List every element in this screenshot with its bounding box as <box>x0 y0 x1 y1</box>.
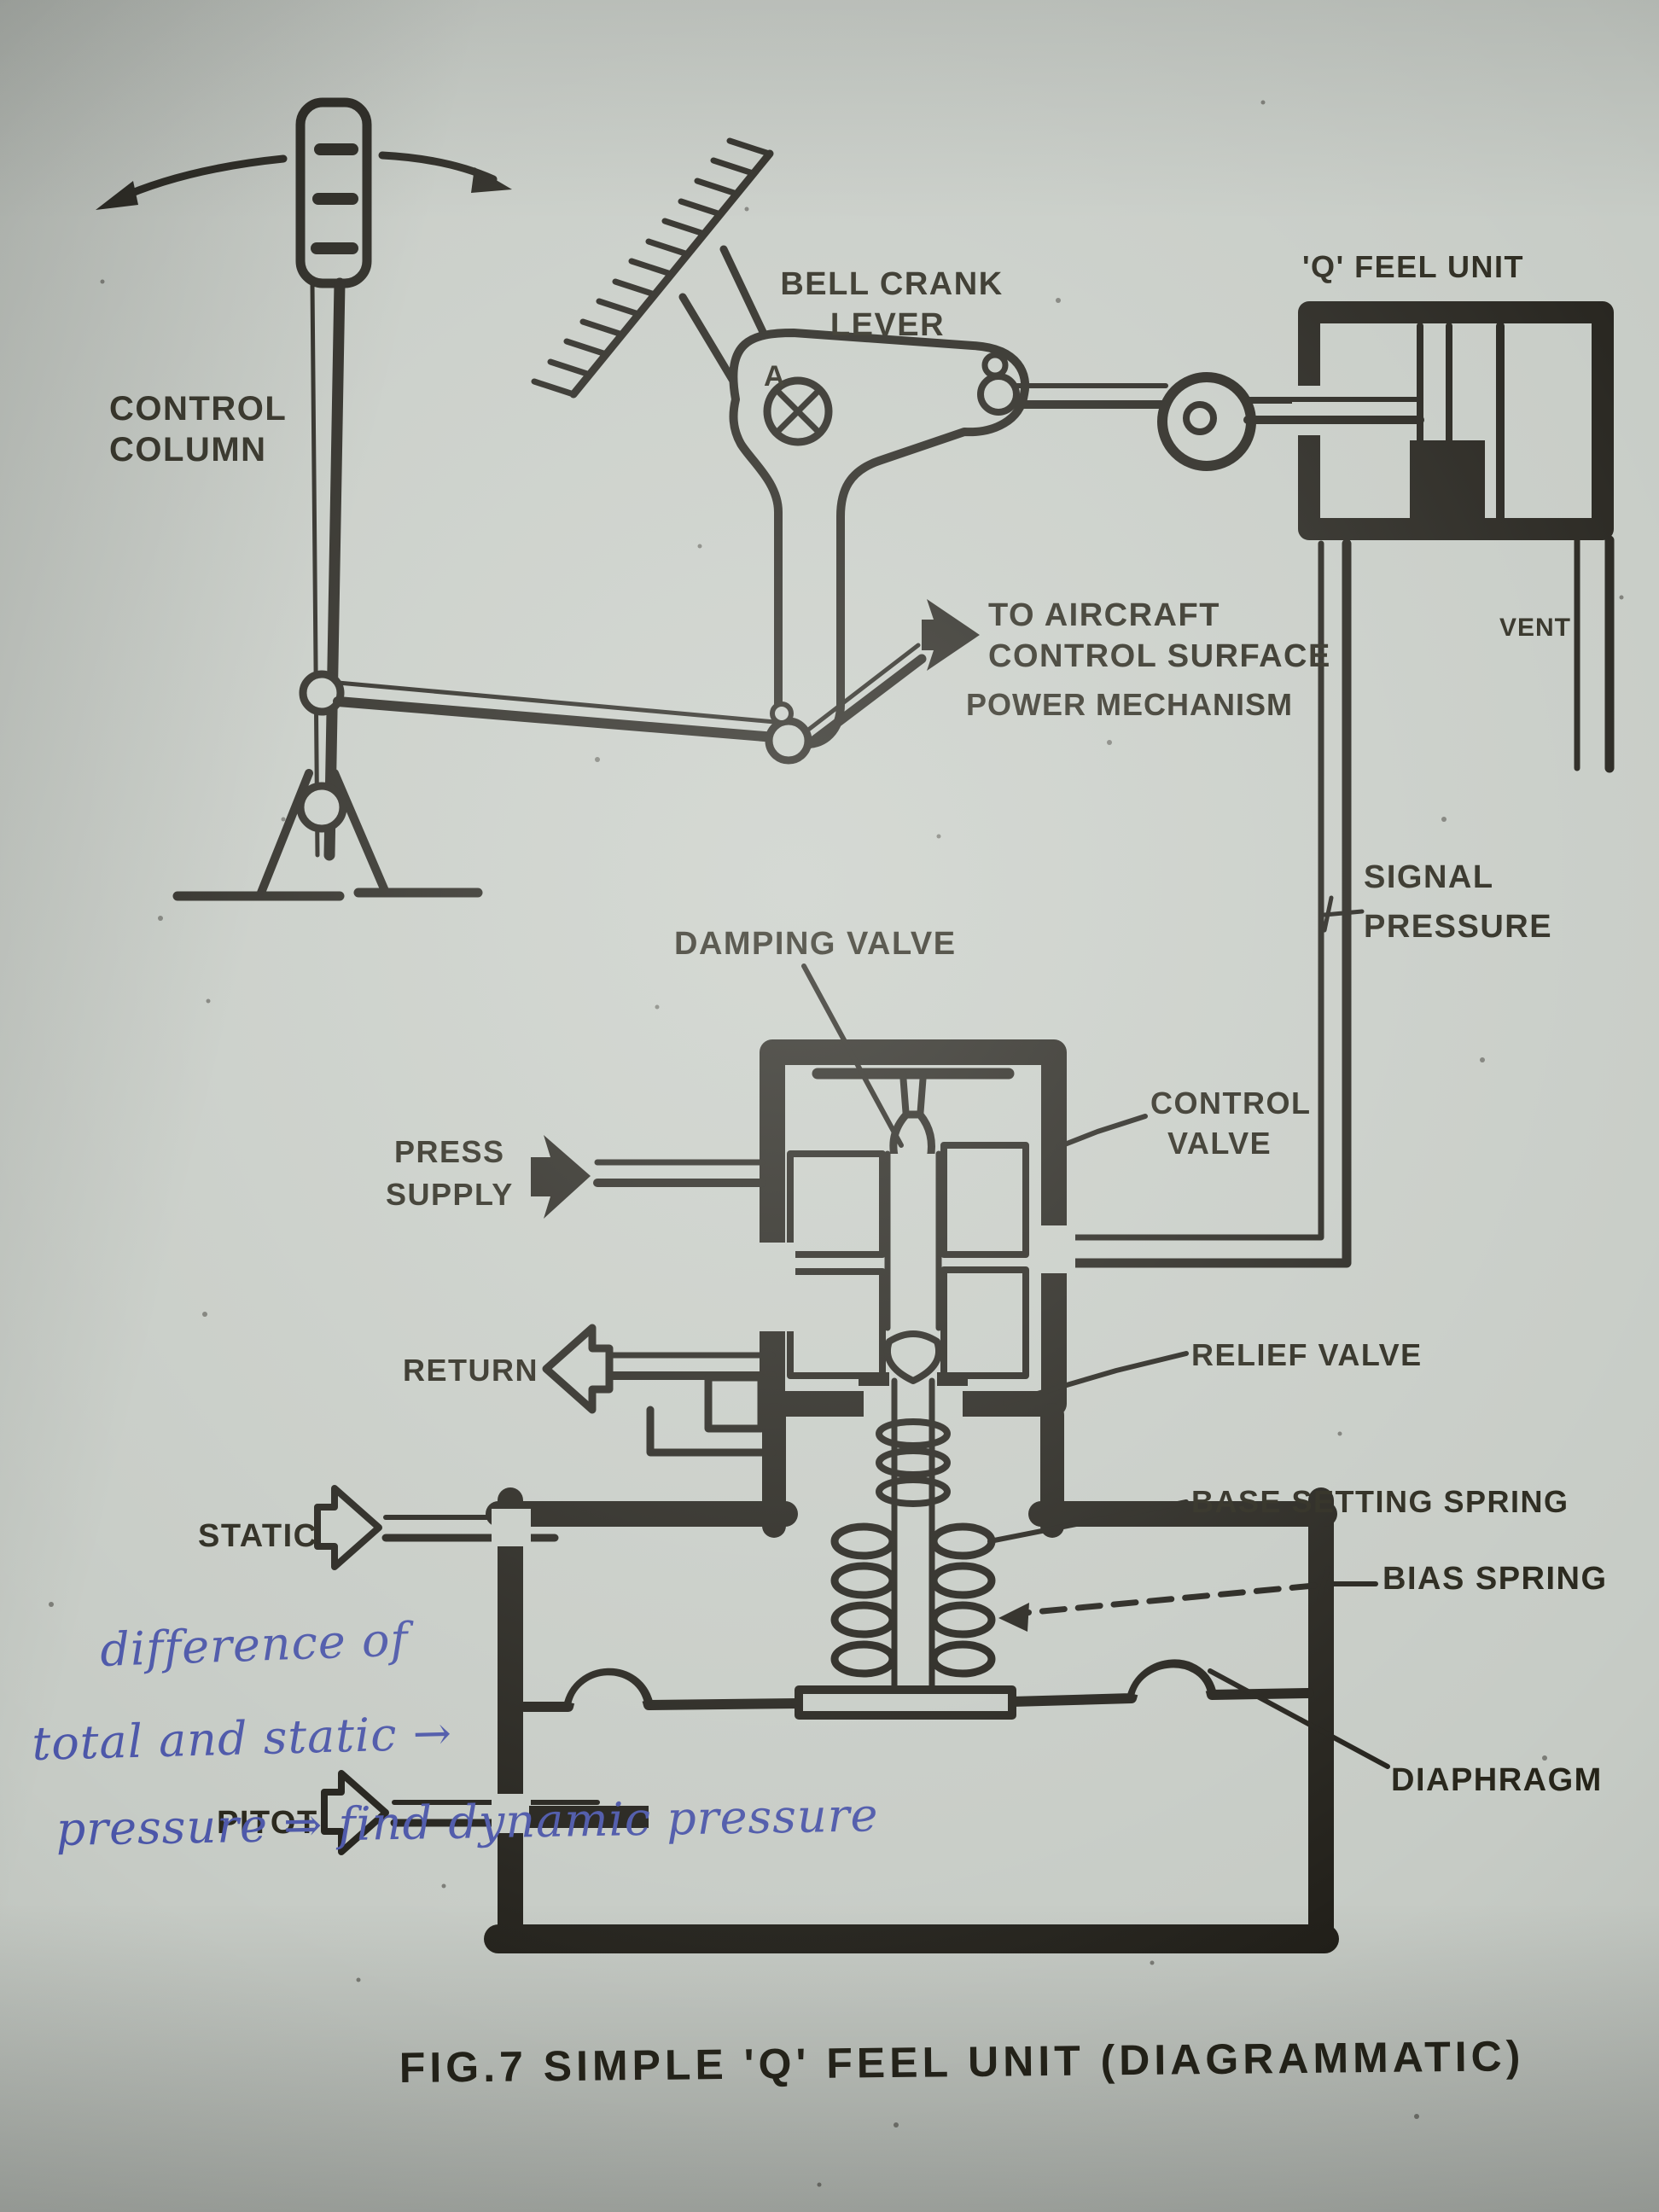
push-rod-joint <box>303 674 341 712</box>
control-valve-label-line2: VALVE <box>1167 1126 1272 1161</box>
return-duct-loop <box>708 1377 761 1429</box>
bell-crank-label-line1: BELL CRANK <box>780 266 1003 302</box>
q-feel-unit-label: 'Q' FEEL UNIT <box>1302 249 1524 284</box>
lower-arm-eye <box>769 721 808 760</box>
press-supply-label-line2: SUPPLY <box>386 1177 514 1212</box>
pivot-a-label: A <box>764 360 786 393</box>
diaphragm-label: DIAPHRAGM <box>1391 1762 1603 1798</box>
q-feel-piston <box>1410 440 1485 519</box>
base-setting-spring-label: BASE SETTING SPRING <box>1191 1484 1569 1519</box>
control-column-label-line1: CONTROL <box>109 390 287 428</box>
bias-spring-label: BIAS SPRING <box>1382 1561 1608 1597</box>
diagram-canvas: CONTROL COLUMN BELL CRANK LEVER A 'Q' FE… <box>0 0 1659 2212</box>
return-label: RETURN <box>403 1353 538 1388</box>
control-column-label-line2: COLUMN <box>109 431 267 469</box>
press-supply-label-line1: PRESS <box>394 1134 505 1169</box>
static-label: STATIC <box>198 1518 318 1554</box>
to-surface-label-line3: POWER MECHANISM <box>966 687 1293 722</box>
bell-crank-label-line2: LEVER <box>830 307 945 343</box>
damping-valve-label: DAMPING VALVE <box>674 926 957 962</box>
signal-pressure-label-line1: SIGNAL <box>1364 859 1494 895</box>
handwritten-line2: total and static → <box>32 1706 453 1771</box>
signal-pressure-label-line2: PRESSURE <box>1364 909 1552 945</box>
to-surface-label-line2: CONTROL SURFACE <box>988 638 1331 674</box>
vent-label: VENT <box>1499 614 1571 642</box>
upper-arm-eye <box>981 376 1016 412</box>
handwritten-line1: difference of <box>99 1612 415 1677</box>
relief-valve-label: RELIEF VALVE <box>1191 1337 1423 1372</box>
control-valve-label-line1: CONTROL <box>1150 1086 1311 1121</box>
spring-seat-plate <box>799 1690 1012 1715</box>
to-surface-label-line1: TO AIRCRAFT <box>988 597 1220 633</box>
scanned-diagram-page: CONTROL COLUMN BELL CRANK LEVER A 'Q' FE… <box>0 0 1659 2212</box>
column-base-pivot <box>300 786 343 829</box>
